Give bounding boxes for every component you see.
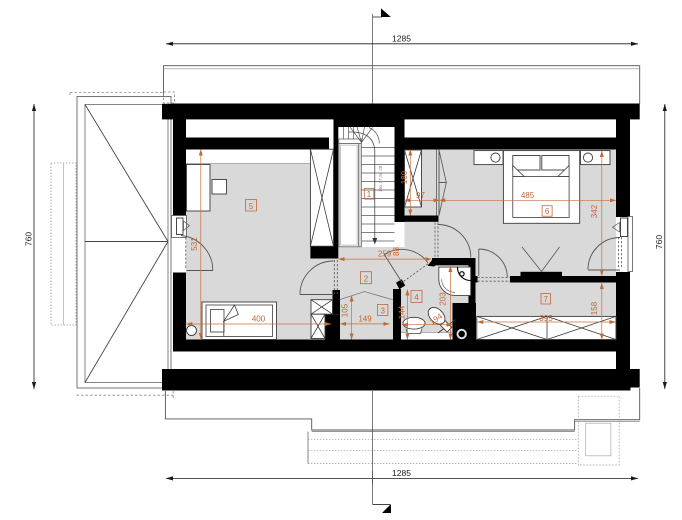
- svg-text:259: 259: [378, 250, 392, 259]
- svg-text:16x 17,9x 28: 16x 17,9x 28: [378, 165, 383, 192]
- svg-text:1285: 1285: [392, 468, 411, 478]
- svg-text:203: 203: [439, 292, 448, 306]
- svg-text:5: 5: [249, 202, 254, 211]
- svg-text:400: 400: [252, 315, 266, 324]
- svg-text:485: 485: [521, 191, 535, 200]
- svg-text:144: 144: [397, 305, 406, 319]
- svg-text:1: 1: [367, 190, 372, 199]
- svg-text:97: 97: [416, 191, 425, 200]
- svg-text:3: 3: [380, 307, 385, 316]
- svg-text:2: 2: [364, 274, 369, 283]
- svg-text:6: 6: [545, 207, 550, 216]
- svg-text:1285: 1285: [392, 34, 411, 44]
- svg-text:88: 88: [392, 247, 401, 256]
- svg-text:395: 395: [539, 314, 553, 323]
- svg-text:7: 7: [543, 295, 548, 304]
- svg-text:760: 760: [654, 235, 664, 249]
- svg-text:180: 180: [400, 170, 409, 184]
- svg-text:531: 531: [190, 237, 199, 251]
- svg-text:4: 4: [414, 293, 419, 302]
- svg-text:158: 158: [590, 301, 599, 315]
- svg-text:342: 342: [590, 204, 599, 218]
- svg-text:105: 105: [341, 303, 350, 317]
- svg-text:149: 149: [358, 314, 372, 323]
- svg-text:760: 760: [24, 232, 34, 246]
